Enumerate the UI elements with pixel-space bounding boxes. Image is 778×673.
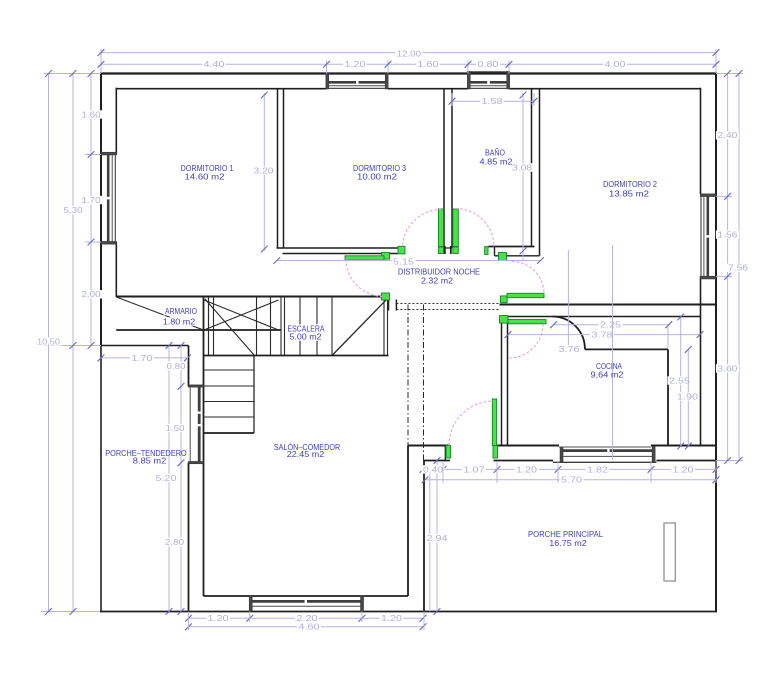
svg-text:1.20: 1.20 xyxy=(673,465,695,474)
svg-text:1.82: 1.82 xyxy=(587,465,609,474)
svg-text:0.40: 0.40 xyxy=(423,465,444,474)
svg-text:3.76: 3.76 xyxy=(559,345,581,354)
svg-text:1.20: 1.20 xyxy=(516,465,538,474)
svg-text:2.55: 2.55 xyxy=(669,376,691,385)
svg-text:4.60: 4.60 xyxy=(299,623,321,632)
svg-text:12.00: 12.00 xyxy=(397,49,422,58)
svg-text:5.70: 5.70 xyxy=(561,476,583,485)
svg-text:4.00: 4.00 xyxy=(605,60,627,69)
svg-text:2.80: 2.80 xyxy=(165,538,185,547)
svg-text:0.80: 0.80 xyxy=(478,60,500,69)
svg-text:1.58: 1.58 xyxy=(482,97,504,106)
svg-text:2.25: 2.25 xyxy=(600,321,622,330)
svg-text:3.60: 3.60 xyxy=(717,364,738,373)
svg-text:5.20: 5.20 xyxy=(156,474,178,483)
svg-text:14.60 m2: 14.60 m2 xyxy=(185,172,226,181)
svg-text:0.80: 0.80 xyxy=(167,362,187,371)
svg-text:1.20: 1.20 xyxy=(381,614,403,623)
svg-text:1.90: 1.90 xyxy=(677,392,699,401)
svg-text:1.60: 1.60 xyxy=(82,110,102,119)
svg-text:2.94: 2.94 xyxy=(427,534,449,543)
svg-text:ARMARIO: ARMARIO xyxy=(165,307,197,316)
svg-text:7.56: 7.56 xyxy=(728,264,749,273)
svg-text:13.85 m2: 13.85 m2 xyxy=(609,189,650,198)
svg-text:2.32 m2: 2.32 m2 xyxy=(421,276,454,285)
svg-text:16.75 m2: 16.75 m2 xyxy=(549,539,587,548)
svg-text:3.20: 3.20 xyxy=(254,166,275,175)
svg-text:1.60: 1.60 xyxy=(418,60,440,69)
svg-text:10.00 m2: 10.00 m2 xyxy=(357,172,398,181)
svg-text:BAÑO: BAÑO xyxy=(485,148,505,157)
svg-text:1.20: 1.20 xyxy=(208,614,230,623)
svg-text:DISTRIBUIDOR NOCHE: DISTRIBUIDOR NOCHE xyxy=(398,267,480,276)
svg-text:9,64 m2: 9,64 m2 xyxy=(591,370,625,379)
svg-text:8.85 m2: 8.85 m2 xyxy=(133,456,167,465)
svg-text:2.40: 2.40 xyxy=(717,131,738,140)
svg-text:5.00 m2: 5.00 m2 xyxy=(290,332,323,341)
svg-text:1.80 m2: 1.80 m2 xyxy=(163,317,196,326)
svg-text:PORCHE PRINCIPAL: PORCHE PRINCIPAL xyxy=(528,530,604,539)
svg-text:2.00: 2.00 xyxy=(82,290,102,299)
svg-text:1.70: 1.70 xyxy=(82,196,102,205)
svg-text:1.07: 1.07 xyxy=(464,465,486,474)
svg-text:10,50: 10,50 xyxy=(37,337,61,346)
svg-text:3.78: 3.78 xyxy=(592,331,614,340)
svg-text:DORMITORIO 2: DORMITORIO 2 xyxy=(603,180,658,189)
svg-text:22.45 m2: 22.45 m2 xyxy=(287,450,325,459)
svg-text:1.56: 1.56 xyxy=(717,230,738,239)
svg-text:5,30: 5,30 xyxy=(64,206,84,215)
svg-text:1.70: 1.70 xyxy=(132,354,154,363)
svg-text:1.50: 1.50 xyxy=(166,424,186,433)
svg-text:1.20: 1.20 xyxy=(345,60,367,69)
svg-text:4.40: 4.40 xyxy=(204,60,226,69)
svg-text:4.85 m2: 4.85 m2 xyxy=(480,157,514,166)
svg-text:3.08: 3.08 xyxy=(512,163,533,172)
svg-text:5.15: 5.15 xyxy=(393,257,415,266)
